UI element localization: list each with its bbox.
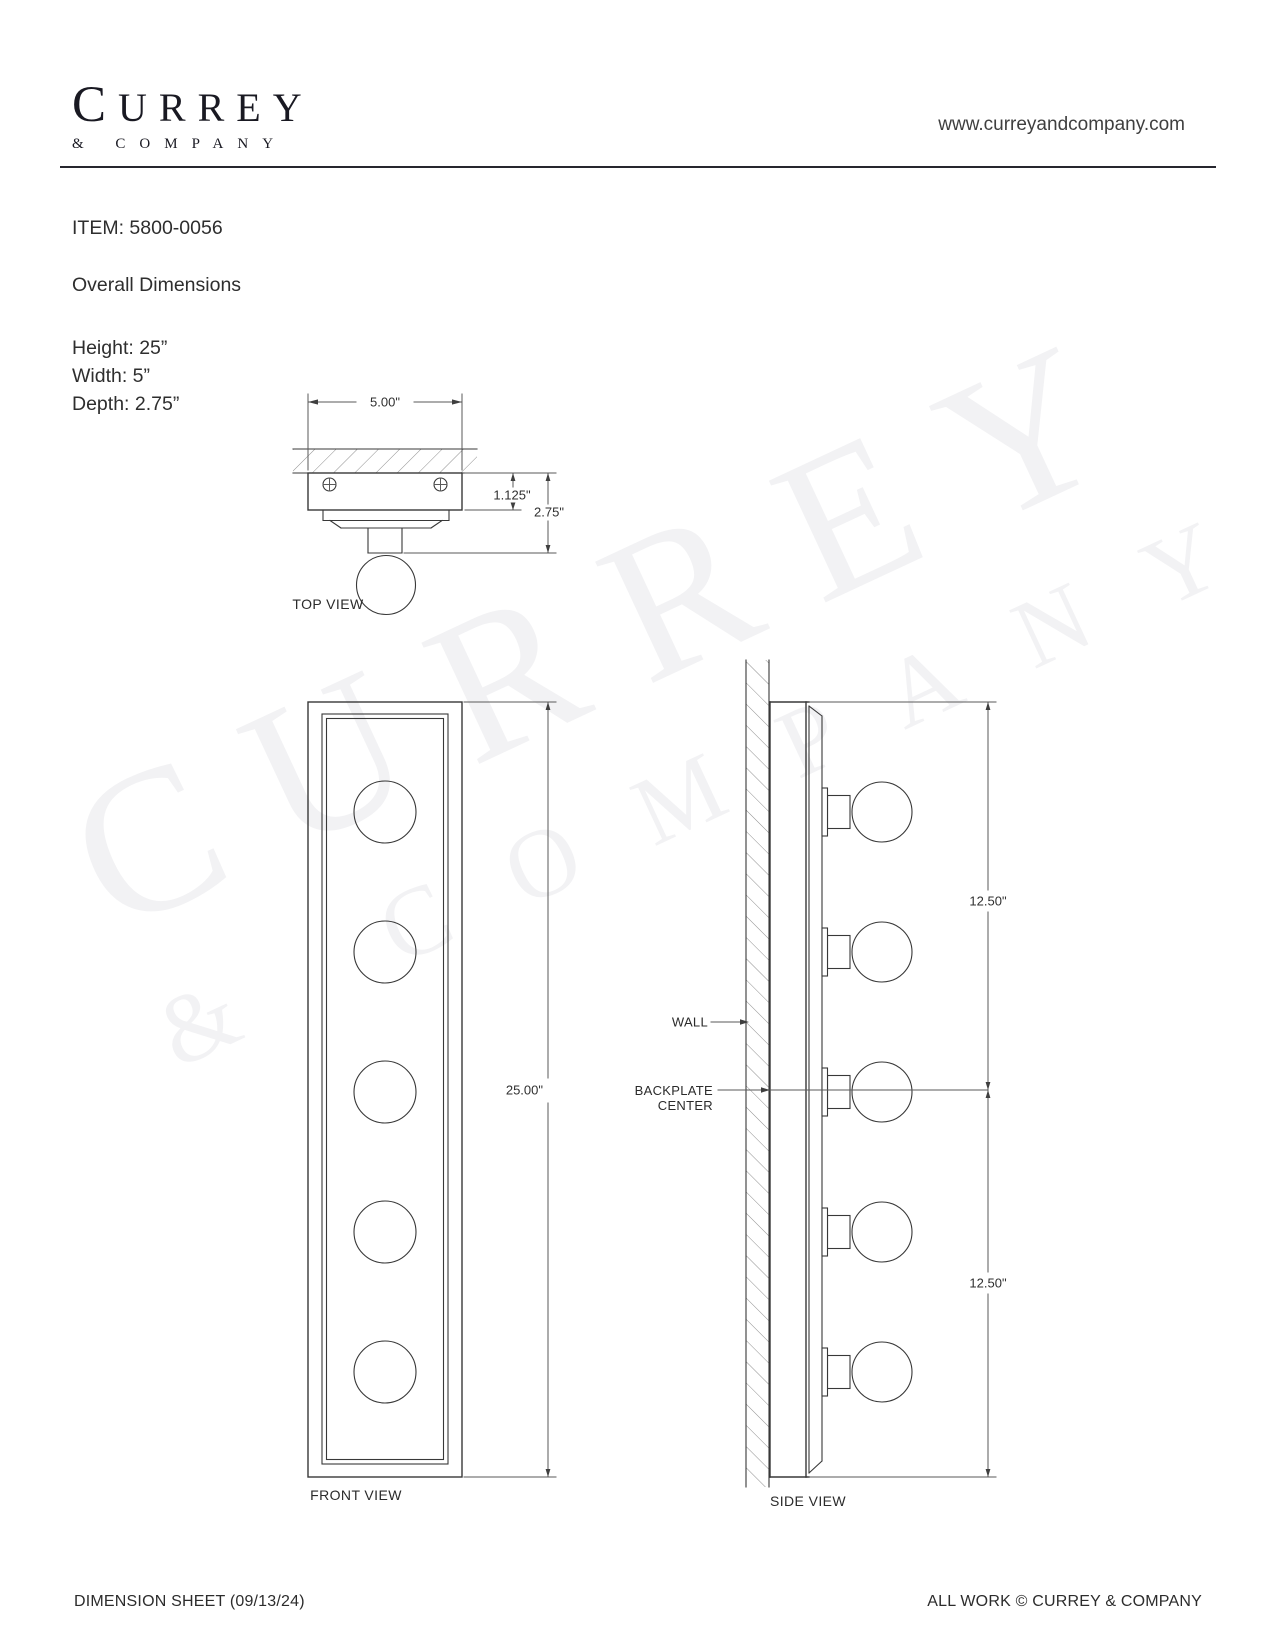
front-view-bulb xyxy=(354,781,416,843)
side-view-bulb-assembly xyxy=(822,922,912,982)
front-view-frame-inner2 xyxy=(327,719,444,1460)
front-view-bulb xyxy=(354,1201,416,1263)
front-view-label: FRONT VIEW xyxy=(310,1487,402,1503)
side-view-wall-hatch xyxy=(746,660,769,1487)
backplate-annotation-line1: BACKPLATE xyxy=(635,1083,713,1098)
top-view-drawing xyxy=(293,394,556,615)
top-view-wall-hatch xyxy=(293,449,477,473)
backplate-center-annotation: BACKPLATE CENTER xyxy=(635,1083,713,1113)
top-view-socket xyxy=(323,510,449,553)
screw-icon xyxy=(434,478,447,491)
footer-copyright: ALL WORK © CURREY & COMPANY xyxy=(927,1593,1202,1611)
front-view-bulb xyxy=(354,921,416,983)
side-view-bulb-assembly xyxy=(822,1062,912,1122)
side-view-drawing xyxy=(711,660,996,1487)
dim-backplate-depth-label: 1.125" xyxy=(490,488,533,503)
screw-icon xyxy=(323,478,336,491)
side-view-label: SIDE VIEW xyxy=(770,1493,846,1509)
wall-annotation: WALL xyxy=(672,1015,708,1030)
dim-overall-depth-label: 2.75" xyxy=(531,505,567,520)
technical-drawing xyxy=(0,0,1275,1650)
backplate-annotation-line2: CENTER xyxy=(635,1098,713,1113)
dim-height-label: 25.00" xyxy=(503,1083,546,1098)
front-view-frame-inner xyxy=(322,714,448,1464)
front-view-bulb xyxy=(354,1061,416,1123)
dim-lower-span-label: 12.50" xyxy=(966,1276,1009,1291)
dimension-sheet-page: CURREY & COMPANY CURREY & COMPANY www.cu… xyxy=(0,0,1275,1650)
dim-upper-span-label: 12.50" xyxy=(966,894,1009,909)
top-view-label: TOP VIEW xyxy=(292,596,363,612)
side-view-bulb-assembly xyxy=(822,1202,912,1262)
side-view-bulb-assembly xyxy=(822,782,912,842)
front-view-bulb xyxy=(354,1341,416,1403)
dim-width-label: 5.00" xyxy=(367,395,403,410)
front-view-frame-outer xyxy=(308,702,462,1477)
top-view-bulb xyxy=(357,556,416,615)
side-view-bulb-assembly xyxy=(822,1342,912,1402)
footer-sheet-date: DIMENSION SHEET (09/13/24) xyxy=(74,1593,305,1611)
